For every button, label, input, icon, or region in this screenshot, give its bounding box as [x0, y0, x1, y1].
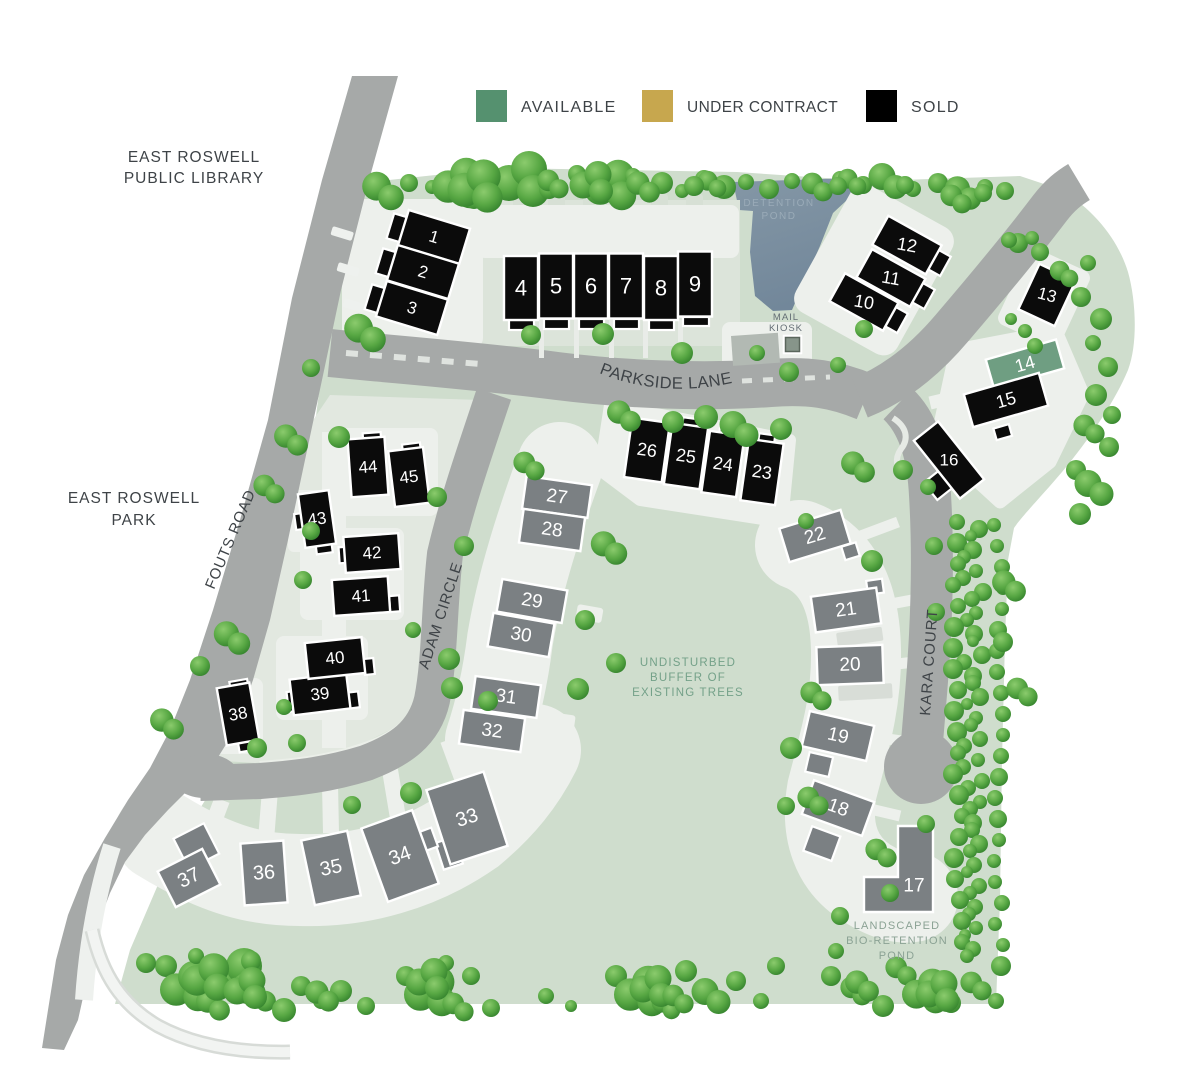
svg-text:UNDER CONTRACT: UNDER CONTRACT [687, 99, 838, 116]
svg-text:24: 24 [712, 453, 735, 476]
svg-text:POND: POND [879, 950, 916, 962]
svg-text:9: 9 [689, 272, 701, 297]
svg-text:POND: POND [762, 211, 797, 222]
svg-text:MAIL: MAIL [773, 312, 799, 323]
svg-text:32: 32 [480, 719, 504, 743]
svg-text:11: 11 [880, 267, 902, 290]
svg-text:30: 30 [509, 623, 533, 647]
svg-text:BUFFER OF: BUFFER OF [650, 672, 726, 684]
svg-text:45: 45 [398, 466, 419, 487]
svg-text:KIOSK: KIOSK [769, 323, 803, 334]
svg-text:23: 23 [751, 461, 774, 484]
svg-text:27: 27 [545, 485, 569, 509]
svg-text:20: 20 [839, 654, 861, 676]
svg-text:12: 12 [895, 233, 918, 256]
svg-text:21: 21 [834, 598, 858, 622]
svg-text:SOLD: SOLD [911, 99, 960, 116]
svg-text:41: 41 [351, 586, 371, 606]
svg-text:PUBLIC LIBRARY: PUBLIC LIBRARY [124, 170, 264, 187]
svg-text:17: 17 [903, 876, 924, 897]
svg-text:5: 5 [550, 274, 562, 299]
svg-text:BIO-RETENTION: BIO-RETENTION [846, 935, 948, 947]
svg-text:40: 40 [325, 648, 346, 669]
svg-text:44: 44 [358, 457, 378, 477]
svg-text:29: 29 [520, 589, 544, 613]
svg-text:LANDSCAPED: LANDSCAPED [854, 920, 941, 932]
svg-text:8: 8 [655, 276, 667, 301]
svg-text:25: 25 [675, 445, 698, 468]
svg-text:42: 42 [362, 543, 382, 563]
svg-text:31: 31 [494, 685, 518, 709]
svg-text:26: 26 [636, 439, 659, 462]
svg-text:28: 28 [540, 518, 564, 542]
svg-text:36: 36 [252, 861, 276, 884]
svg-text:DETENTION: DETENTION [743, 198, 814, 209]
svg-text:38: 38 [227, 703, 249, 725]
svg-text:10: 10 [852, 290, 875, 313]
svg-text:PARK: PARK [111, 512, 156, 529]
svg-text:16: 16 [940, 451, 959, 470]
svg-text:7: 7 [620, 274, 632, 299]
svg-text:EXISTING TREES: EXISTING TREES [632, 687, 744, 699]
svg-text:4: 4 [515, 276, 527, 301]
svg-text:AVAILABLE: AVAILABLE [521, 99, 617, 116]
svg-text:6: 6 [585, 274, 597, 299]
svg-text:35: 35 [318, 855, 344, 881]
svg-text:UNDISTURBED: UNDISTURBED [640, 657, 736, 669]
svg-text:EAST ROSWELL: EAST ROSWELL [128, 149, 260, 166]
svg-text:39: 39 [309, 683, 330, 704]
svg-text:EAST ROSWELL: EAST ROSWELL [68, 490, 200, 507]
